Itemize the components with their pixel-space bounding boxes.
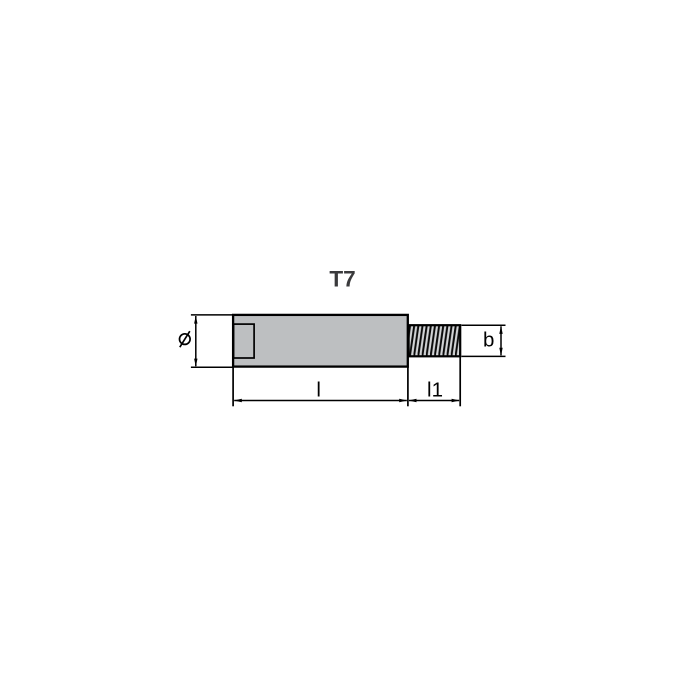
svg-text:b: b: [483, 328, 494, 351]
svg-text:l: l: [316, 378, 321, 401]
svg-text:T7: T7: [329, 266, 355, 291]
svg-text:l1: l1: [427, 378, 443, 401]
